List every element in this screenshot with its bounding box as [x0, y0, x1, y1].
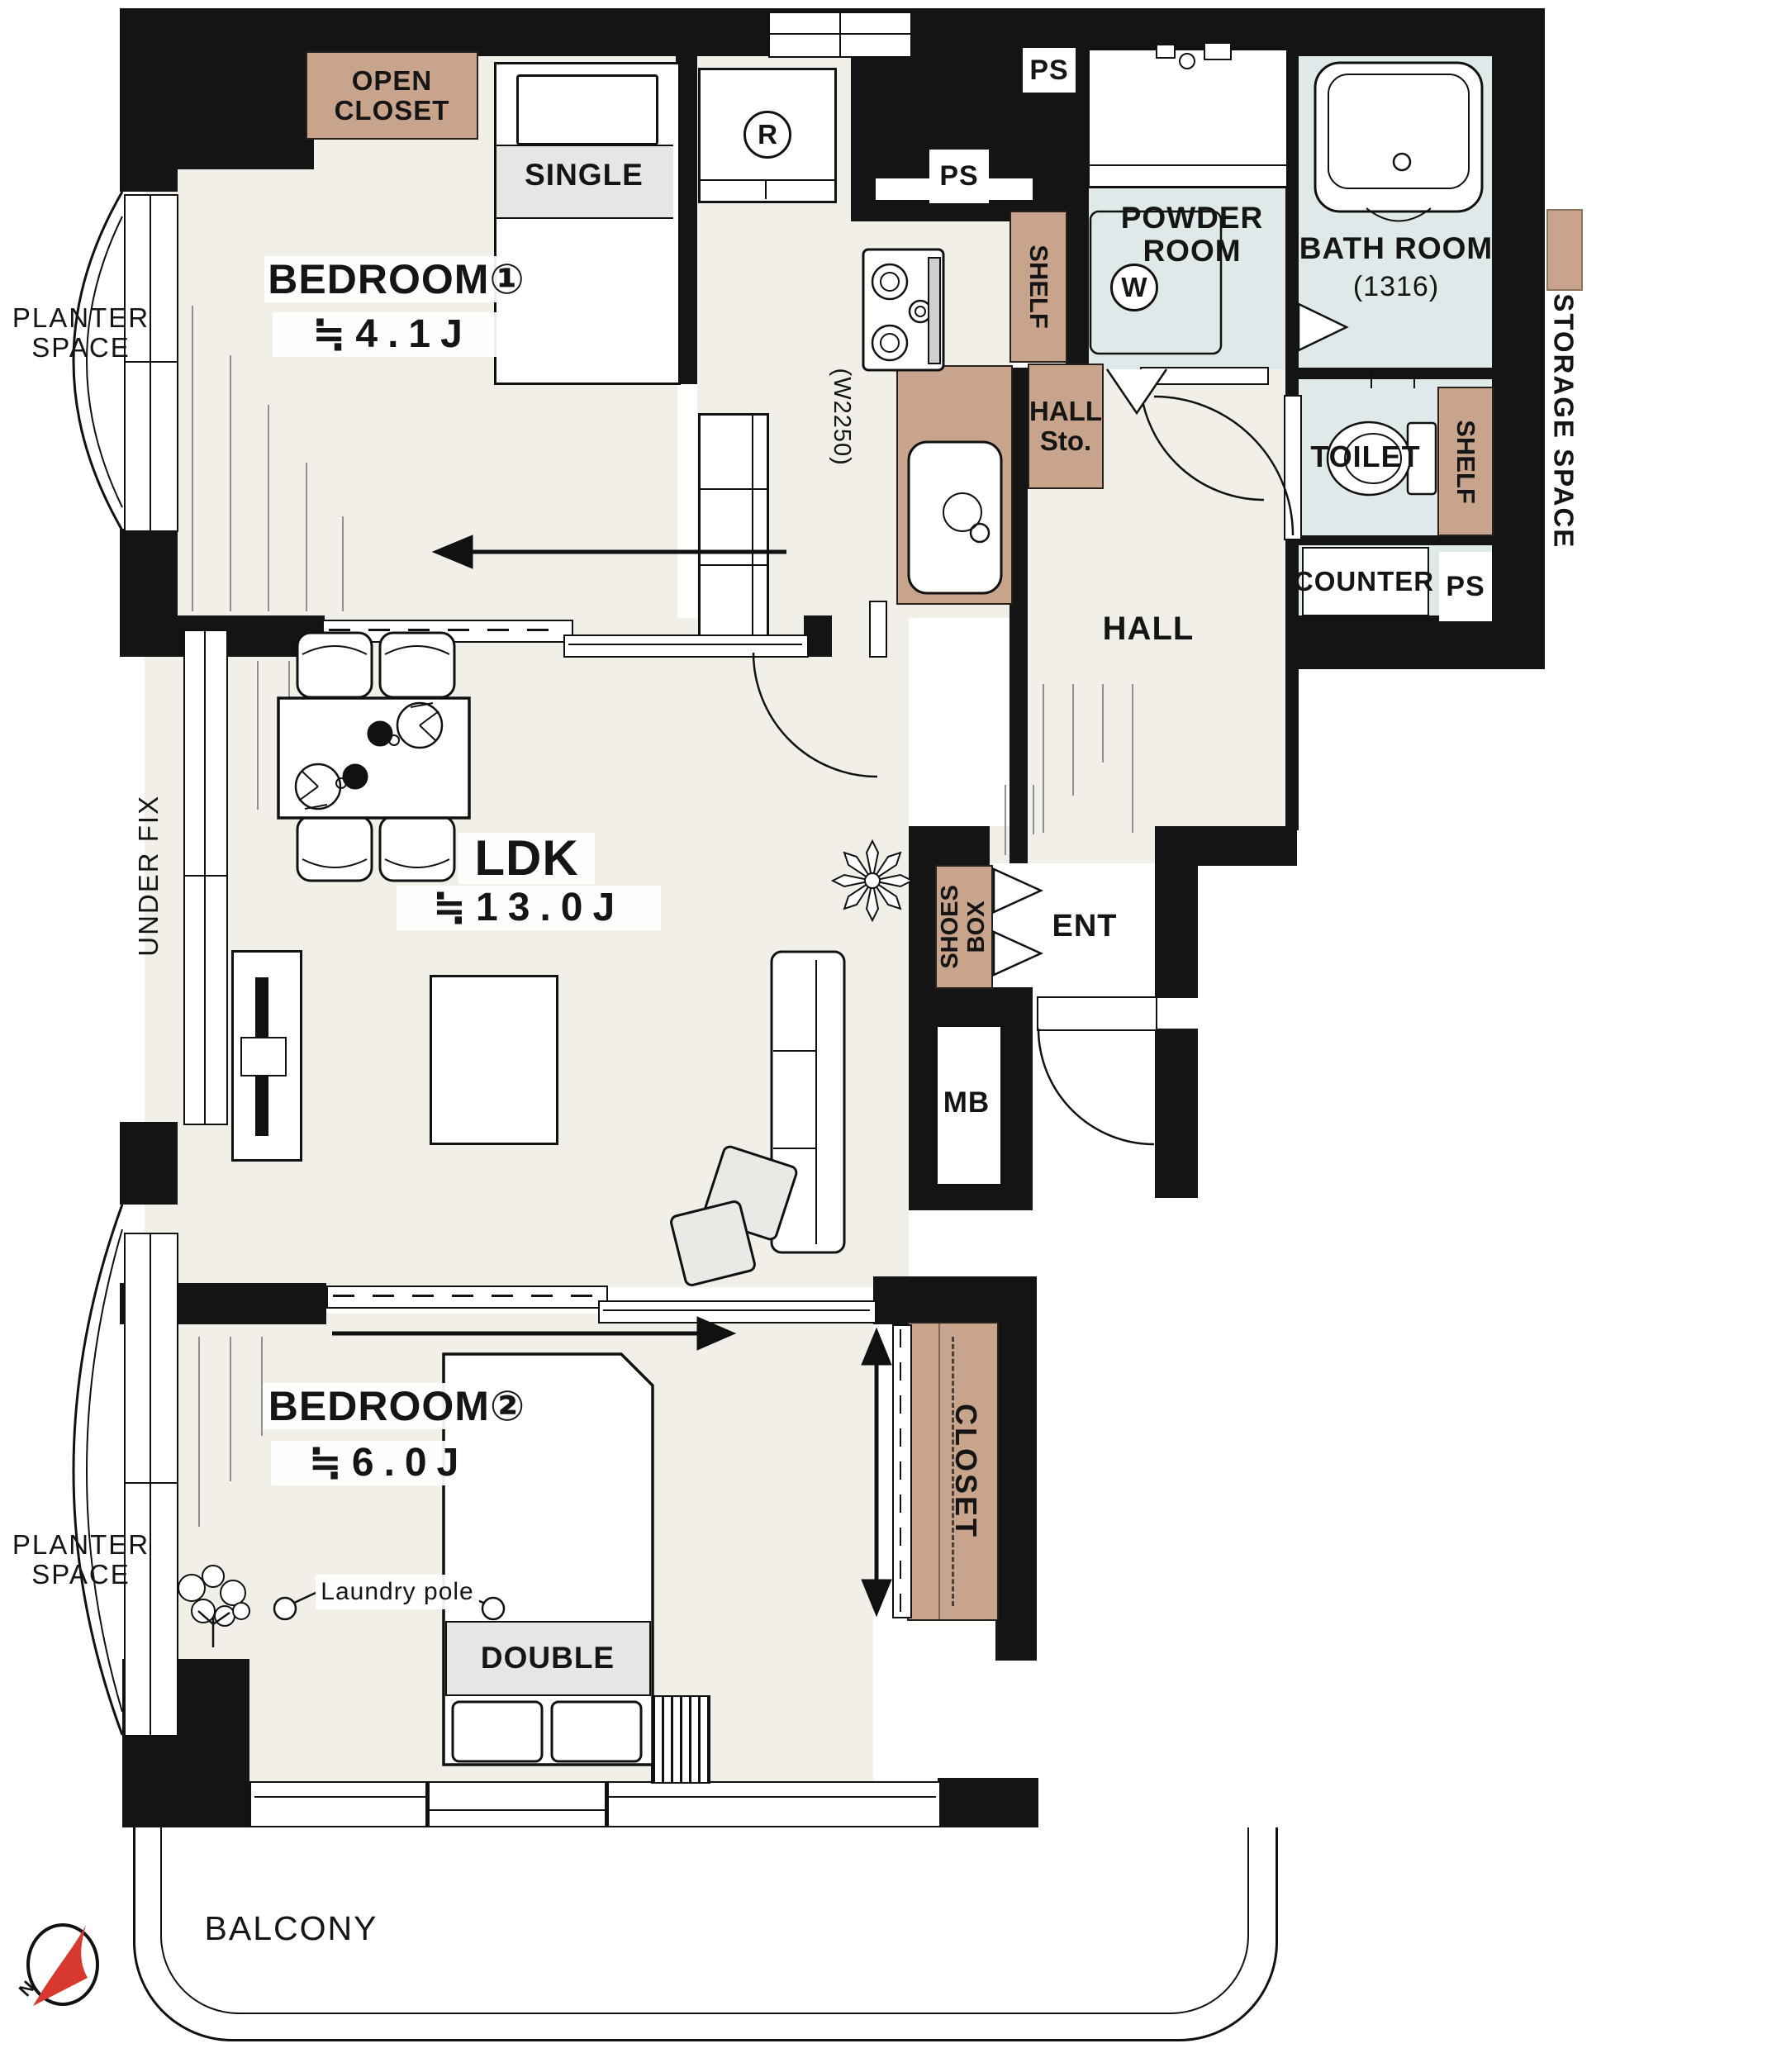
mb-label: MB: [937, 1084, 996, 1122]
kitchen-width-label: (W2250): [818, 351, 864, 483]
open-closet-label: OPEN: [335, 66, 450, 96]
planter-bay-bottom: [74, 1205, 122, 1735]
closet: CLOSET: [907, 1322, 999, 1621]
storage-space-box: [1546, 209, 1583, 291]
wall: [1492, 541, 1545, 669]
wall: [120, 1122, 178, 1205]
shoes-box-label: SHOES: [938, 885, 964, 969]
kitchen-window: [768, 12, 912, 58]
bay-window-bottom: [124, 1233, 178, 1737]
powder-vanity: [1087, 48, 1289, 188]
bath-room-label: BATH ROOM: [1305, 230, 1487, 268]
wall: [1289, 535, 1492, 545]
bedroom1-sliding-door[interactable]: [322, 620, 573, 643]
kitchen-cabinet: [698, 413, 769, 643]
hall-storage-label: HALL: [1029, 397, 1102, 426]
under-fix-label: UNDER FIX: [124, 768, 173, 983]
balcony-label: BALCONY: [190, 1907, 392, 1950]
kitchen-door[interactable]: [869, 601, 887, 658]
single-bed: [494, 62, 681, 385]
powder-room-door[interactable]: [1140, 367, 1269, 385]
hall-storage-label2: Sto.: [1029, 426, 1102, 456]
laundry-pole-label: Laundry pole: [316, 1575, 479, 1609]
open-closet: OPEN CLOSET: [306, 51, 478, 140]
wall: [120, 529, 178, 630]
bedroom2-name: BEDROOM②: [263, 1383, 531, 1429]
entrance-door[interactable]: [1037, 996, 1157, 1031]
bedroom1-sliding-door-leaf[interactable]: [563, 634, 809, 658]
storage-space-wrap: STORAGE SPACE: [1535, 297, 1591, 545]
ps-label: PS: [939, 161, 978, 192]
compass-needle: [33, 1925, 88, 2006]
counter-label: COUNTER: [1302, 565, 1426, 598]
compass-north-label: N: [10, 1971, 45, 2006]
ps-chip-counter: PS: [1439, 552, 1492, 621]
bath-room-size: (1316): [1322, 269, 1470, 304]
single-bed-label: SINGLE: [499, 150, 669, 200]
bedroom2-sliding-door-leaf[interactable]: [598, 1300, 876, 1324]
ent-label: ENT: [1039, 907, 1130, 947]
bath-floor: [1299, 50, 1492, 369]
bedroom2-area: ≒6.0J: [271, 1441, 506, 1485]
toilet-shelf: SHELF: [1437, 387, 1494, 536]
wall: [1155, 866, 1198, 998]
planter-space-top: PLANTERSPACE: [7, 293, 155, 372]
closet-sliding-door[interactable]: [892, 1324, 912, 1618]
toilet-shelf-label: SHELF: [1451, 420, 1480, 504]
kitchen-shelf-label: SHELF: [1024, 245, 1053, 329]
washer-letter: W: [1121, 272, 1147, 303]
bedroom2-window: [249, 1781, 941, 1827]
bedroom1-name: BEDROOM①: [264, 256, 529, 302]
wall: [120, 8, 178, 192]
toilet-label: TOILET: [1304, 438, 1428, 476]
kitchen-shelf: SHELF: [1010, 211, 1067, 363]
planter-space-bottom: PLANTERSPACE: [7, 1520, 155, 1599]
hall-label: HALL: [1082, 610, 1214, 649]
ps-label: PS: [1446, 572, 1485, 602]
kitchen-counter: [896, 365, 1013, 605]
refrigerator-mark: R: [743, 111, 791, 159]
storage-space-label: STORAGE SPACE: [1548, 294, 1578, 549]
shoes-box: SHOES BOX: [935, 865, 993, 989]
ldk-name: LDK: [458, 833, 595, 884]
ldk-area: ≒13.0J: [397, 886, 661, 930]
powder-room-label: POWDERROOM: [1099, 197, 1285, 273]
wall: [1155, 1029, 1198, 1198]
louver-panel: [651, 1695, 710, 1784]
refrigerator-letter: R: [758, 119, 777, 150]
under-fix-window: [183, 630, 228, 1125]
ps-label: PS: [1029, 55, 1068, 86]
wall: [873, 1276, 995, 1324]
tv-board: [231, 950, 302, 1162]
closet-label: CLOSET: [948, 1404, 983, 1539]
bedroom2-sliding-door[interactable]: [326, 1285, 608, 1309]
wall: [995, 1276, 1037, 1661]
bedroom1-area: ≒4.1J: [273, 312, 512, 357]
ldk-low-table: [430, 975, 558, 1145]
ps-chip-kitchen: PS: [929, 150, 989, 203]
wall: [1285, 368, 1492, 379]
wall: [909, 826, 990, 866]
toilet-door[interactable]: [1284, 395, 1302, 540]
wall: [938, 1778, 1038, 1827]
ps-chip-powder: PS: [1023, 48, 1076, 93]
floor-plan: OPEN CLOSET SHELF HALL Sto. SHELF STORAG…: [0, 0, 1772, 2072]
wall: [909, 866, 935, 987]
open-closet-label2: CLOSET: [335, 96, 450, 126]
shoes-box-label2: BOX: [964, 885, 991, 969]
wall: [1155, 826, 1297, 866]
hall-storage: HALL Sto.: [1028, 364, 1104, 489]
double-bed-label: DOUBLE: [463, 1637, 633, 1679]
